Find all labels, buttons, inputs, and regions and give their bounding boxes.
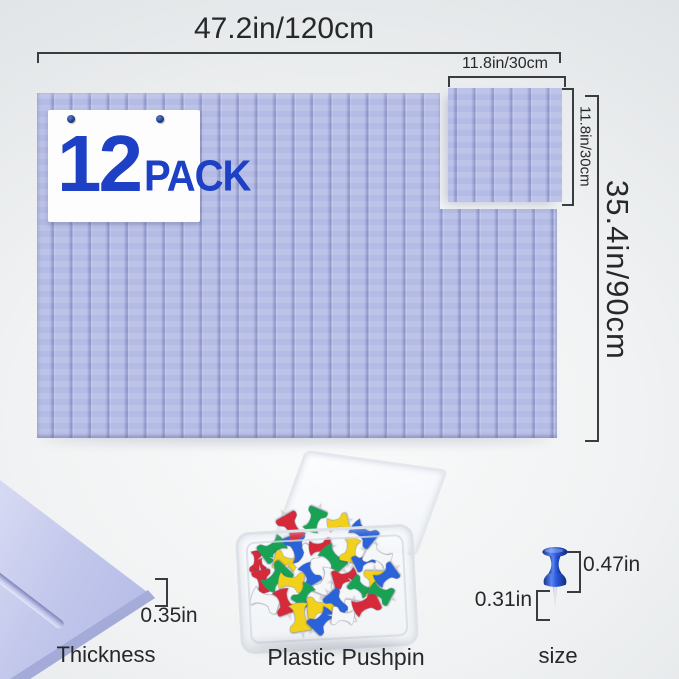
- thickness-bracket: [155, 578, 168, 607]
- pin-needle-length-label: 0.31in: [458, 588, 532, 612]
- pack-count: 12: [57, 124, 140, 204]
- board-width-label: 47.2in/120cm: [37, 12, 531, 47]
- pack-badge: 12 PACK: [48, 110, 200, 222]
- pushpin-box-label: Plastic Pushpin: [251, 644, 441, 670]
- pack-unit: PACK: [144, 154, 250, 198]
- product-dimension-figure: 47.2in/120cm 11.8in/30cm 12 PACK 11.8in/…: [0, 0, 679, 679]
- pushpin-box-frame: [235, 523, 419, 654]
- felt-tile: [448, 88, 562, 202]
- tile-width-label: 11.8in/30cm: [448, 55, 562, 73]
- thickness-label: Thickness: [36, 642, 176, 667]
- badge-pin-icon: [156, 115, 164, 123]
- tile-height-bracket: [562, 88, 574, 206]
- thickness-value: 0.35in: [130, 604, 208, 628]
- board-height-bracket: [585, 95, 599, 442]
- pin-size-label: size: [516, 643, 600, 668]
- pin-head-height-label: 0.47in: [583, 553, 640, 577]
- pin-needle-bracket: [536, 590, 550, 621]
- pin-head-bracket: [567, 551, 581, 593]
- pack-badge-text: 12 PACK: [57, 124, 250, 204]
- tile-width-bracket: [448, 76, 566, 87]
- board-height-label: 35.4in/90cm: [599, 148, 635, 392]
